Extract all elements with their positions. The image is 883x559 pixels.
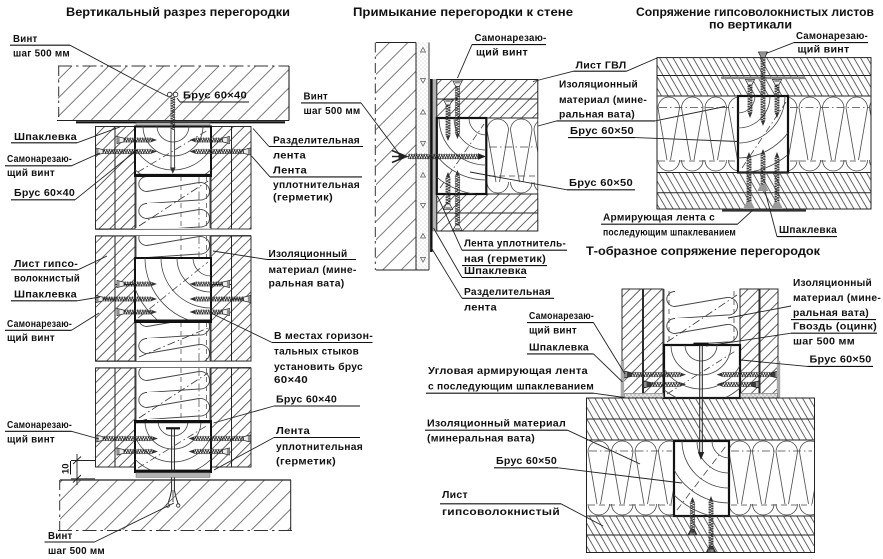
svg-text:Лента: Лента bbox=[273, 166, 307, 177]
svg-text:шаг 500 мм: шаг 500 мм bbox=[13, 49, 70, 60]
svg-text:щий винт: щий винт bbox=[476, 48, 528, 59]
svg-text:Брус 60×40: Брус 60×40 bbox=[14, 188, 75, 199]
svg-text:Брус 60×50: Брус 60×50 bbox=[569, 178, 633, 189]
svg-text:В местах горизон-: В местах горизон- bbox=[274, 331, 373, 342]
svg-text:Самонарезаю-: Самонарезаю- bbox=[796, 31, 868, 42]
svg-text:ная (герметик): ная (герметик) bbox=[464, 254, 546, 265]
svg-text:Армирующая лента с: Армирующая лента с bbox=[603, 213, 715, 224]
svg-text:Шпаклевка: Шпаклевка bbox=[464, 266, 527, 277]
svg-text:Брус 60×40: Брус 60×40 bbox=[276, 395, 337, 406]
svg-text:установить брус: установить брус bbox=[274, 362, 363, 373]
svg-text:Самонарезаю-: Самонарезаю- bbox=[7, 319, 72, 330]
svg-text:ральная вата): ральная вата) bbox=[559, 110, 635, 121]
svg-text:Изоляционный: Изоляционный bbox=[269, 249, 348, 260]
svg-text:Лист ГВЛ: Лист ГВЛ bbox=[576, 61, 627, 72]
svg-text:щий винт: щий винт bbox=[7, 168, 55, 179]
svg-text:ральная вата): ральная вата) bbox=[269, 279, 345, 290]
svg-text:шаг 500 мм: шаг 500 мм bbox=[48, 546, 105, 557]
svg-text:(герметик): (герметик) bbox=[273, 193, 333, 204]
svg-text:Вертикальный разрез перегородк: Вертикальный разрез перегородки bbox=[66, 7, 290, 19]
svg-text:щий винт: щий винт bbox=[7, 435, 55, 446]
svg-text:Винт: Винт bbox=[304, 92, 329, 103]
svg-text:волокнистый: волокнистый bbox=[14, 274, 80, 285]
svg-text:уплотнительная: уплотнительная bbox=[273, 180, 360, 191]
svg-text:Брус 60×50: Брус 60×50 bbox=[496, 456, 557, 467]
svg-text:лента: лента bbox=[273, 151, 306, 162]
svg-text:Разделительная: Разделительная bbox=[273, 136, 360, 147]
svg-text:Самонарезаю-: Самонарезаю- bbox=[7, 154, 72, 165]
svg-text:щий винт: щий винт bbox=[798, 45, 850, 56]
svg-text:Самонарезаю-: Самонарезаю- bbox=[529, 311, 594, 322]
svg-text:материал (мине-: материал (мине- bbox=[793, 293, 881, 304]
svg-text:Лист: Лист bbox=[442, 490, 468, 501]
svg-text:шаг 500 мм: шаг 500 мм bbox=[304, 106, 361, 117]
svg-text:Лист гипсо-: Лист гипсо- bbox=[14, 259, 78, 270]
svg-text:материал (мине-: материал (мине- bbox=[269, 265, 357, 276]
svg-text:Изоляционный: Изоляционный bbox=[793, 278, 872, 289]
svg-text:по вертикали: по вертикали bbox=[709, 20, 792, 32]
svg-text:Лента уплотнитель-: Лента уплотнитель- bbox=[464, 239, 566, 250]
svg-text:Винт: Винт bbox=[13, 34, 38, 45]
svg-text:Изоляционный материал: Изоляционный материал bbox=[427, 419, 566, 430]
svg-text:Самонарезаю-: Самонарезаю- bbox=[7, 420, 72, 431]
svg-text:Винт: Винт bbox=[48, 531, 73, 542]
svg-text:Т-образное сопряжение перегоро: Т-образное сопряжение перегородок bbox=[586, 246, 820, 258]
svg-text:уплотнительная: уплотнительная bbox=[276, 442, 363, 453]
svg-text:Гвоздь (оцинк): Гвоздь (оцинк) bbox=[793, 322, 877, 333]
svg-text:Шпаклевка: Шпаклевка bbox=[14, 132, 77, 143]
svg-text:Шпаклевка: Шпаклевка bbox=[529, 343, 589, 354]
svg-text:Разделительная: Разделительная bbox=[464, 287, 551, 298]
svg-text:Самонарезаю-: Самонарезаю- bbox=[475, 33, 547, 44]
svg-text:последующим шпаклеванием: последующим шпаклеванием bbox=[603, 228, 736, 239]
svg-text:Шпаклевка: Шпаклевка bbox=[779, 225, 837, 236]
svg-text:60×40: 60×40 bbox=[274, 375, 308, 386]
svg-text:Шпаклевка: Шпаклевка bbox=[14, 290, 77, 301]
svg-text:Изоляционный: Изоляционный bbox=[559, 80, 638, 91]
svg-text:гипсоволокнистый: гипсоволокнистый bbox=[442, 507, 560, 518]
svg-text:Сопряжение гипсоволокнистых ли: Сопряжение гипсоволокнистых листов bbox=[636, 7, 874, 19]
svg-text:шаг 500 мм: шаг 500 мм bbox=[793, 337, 855, 348]
svg-text:тальных стыков: тальных стыков bbox=[274, 347, 359, 358]
svg-text:материал (мине-: материал (мине- bbox=[559, 95, 647, 106]
svg-text:(герметик): (герметик) bbox=[276, 457, 336, 468]
svg-text:с последующим шпаклеванием: с последующим шпаклеванием bbox=[428, 382, 594, 393]
svg-text:Брус 60×40: Брус 60×40 bbox=[183, 91, 247, 102]
svg-text:ральная вата): ральная вата) bbox=[793, 308, 869, 319]
svg-text:щий винт: щий винт bbox=[7, 333, 55, 344]
svg-text:Брус 60×50: Брус 60×50 bbox=[570, 126, 634, 137]
svg-text:Угловая армирующая лента: Угловая армирующая лента bbox=[428, 366, 588, 377]
svg-text:Лента: Лента bbox=[276, 426, 310, 437]
svg-text:10: 10 bbox=[61, 463, 72, 474]
svg-text:щий винт: щий винт bbox=[529, 326, 577, 337]
svg-text:Брус 60×50: Брус 60×50 bbox=[810, 355, 872, 366]
svg-text:Примыкание перегородки к стене: Примыкание перегородки к стене bbox=[353, 7, 573, 19]
svg-text:лента: лента bbox=[464, 303, 497, 314]
svg-text:(минеральная вата): (минеральная вата) bbox=[427, 434, 535, 445]
